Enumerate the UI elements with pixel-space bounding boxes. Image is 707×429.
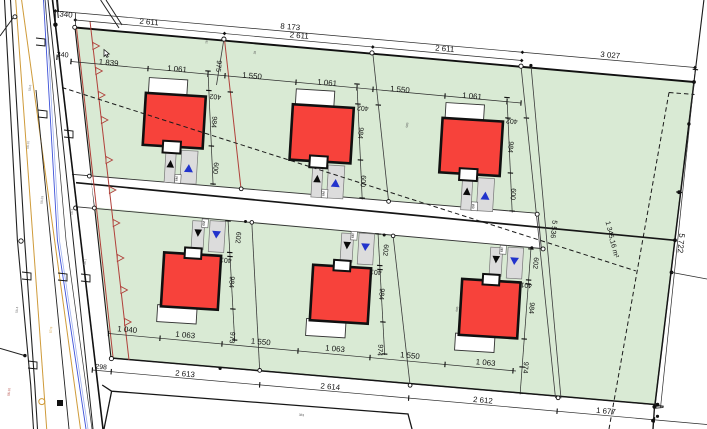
svg-text:585: 585 — [405, 122, 409, 128]
svg-text:1 677: 1 677 — [596, 406, 616, 417]
svg-text:1 550: 1 550 — [250, 337, 271, 348]
svg-text:975: 975 — [214, 60, 222, 72]
svg-text:6M: 6M — [175, 176, 179, 181]
svg-text:58.28: 58.28 — [40, 195, 45, 204]
svg-text:1 061: 1 061 — [167, 64, 187, 75]
svg-text:973: 973 — [227, 332, 235, 344]
svg-text:298: 298 — [95, 364, 107, 372]
svg-text:6M: 6M — [351, 233, 355, 238]
svg-text:600: 600 — [211, 162, 219, 174]
svg-text:401: 401 — [370, 267, 382, 275]
svg-text:5 536: 5 536 — [549, 220, 560, 239]
svg-text:984: 984 — [227, 276, 235, 288]
svg-text:2 611: 2 611 — [289, 30, 309, 41]
svg-text:6M: 6M — [202, 221, 206, 226]
svg-text:984: 984 — [527, 302, 535, 314]
svg-text:1 063: 1 063 — [325, 343, 346, 354]
svg-text:1 550: 1 550 — [400, 350, 421, 361]
svg-text:1 550: 1 550 — [390, 84, 411, 95]
svg-text:3 027: 3 027 — [600, 50, 620, 61]
svg-text:340: 340 — [59, 9, 74, 19]
svg-text:2 614: 2 614 — [320, 381, 341, 392]
svg-text:600: 600 — [358, 175, 366, 187]
svg-text:984: 984 — [506, 141, 514, 153]
svg-text:383: 383 — [299, 413, 305, 417]
svg-text:402: 402 — [357, 103, 369, 111]
svg-text:1 061: 1 061 — [317, 77, 337, 88]
svg-text:402: 402 — [209, 92, 221, 100]
svg-text:1 063: 1 063 — [175, 330, 196, 341]
svg-text:5 722: 5 722 — [676, 233, 687, 253]
svg-text:58.3: 58.3 — [70, 208, 75, 215]
svg-text:984: 984 — [356, 127, 364, 139]
svg-text:1 550: 1 550 — [242, 71, 263, 82]
svg-text:1 839: 1 839 — [98, 57, 119, 68]
svg-text:984: 984 — [377, 288, 385, 300]
svg-text:600: 600 — [508, 188, 516, 200]
svg-text:1 040: 1 040 — [117, 324, 138, 335]
svg-text:602: 602 — [531, 257, 539, 269]
svg-text:58.1: 58.1 — [83, 258, 88, 265]
svg-text:1 063: 1 063 — [475, 357, 496, 368]
svg-text:602: 602 — [381, 244, 389, 256]
svg-text:58.4: 58.4 — [15, 306, 20, 313]
svg-text:56.10: 56.10 — [7, 387, 12, 396]
svg-text:6M: 6M — [500, 247, 504, 252]
svg-text:6M: 6M — [471, 204, 475, 209]
svg-text:401: 401 — [520, 280, 532, 288]
svg-text:2 613: 2 613 — [175, 369, 196, 380]
svg-text:58.10: 58.10 — [26, 140, 31, 149]
svg-text:984: 984 — [209, 116, 217, 128]
svg-text:58.6: 58.6 — [28, 84, 33, 91]
svg-text:974: 974 — [375, 344, 383, 356]
svg-text:57.9: 57.9 — [49, 326, 54, 333]
svg-text:1 061: 1 061 — [462, 91, 482, 102]
svg-text:986: 986 — [455, 306, 459, 312]
svg-text:602: 602 — [233, 232, 241, 244]
svg-text:401: 401 — [220, 255, 232, 263]
svg-text:2 611: 2 611 — [139, 17, 159, 28]
svg-text:6M: 6M — [321, 191, 325, 196]
svg-text:402: 402 — [506, 116, 518, 124]
svg-text:2 612: 2 612 — [473, 395, 493, 406]
svg-text:974: 974 — [521, 362, 529, 374]
svg-text:2 611: 2 611 — [435, 43, 455, 54]
